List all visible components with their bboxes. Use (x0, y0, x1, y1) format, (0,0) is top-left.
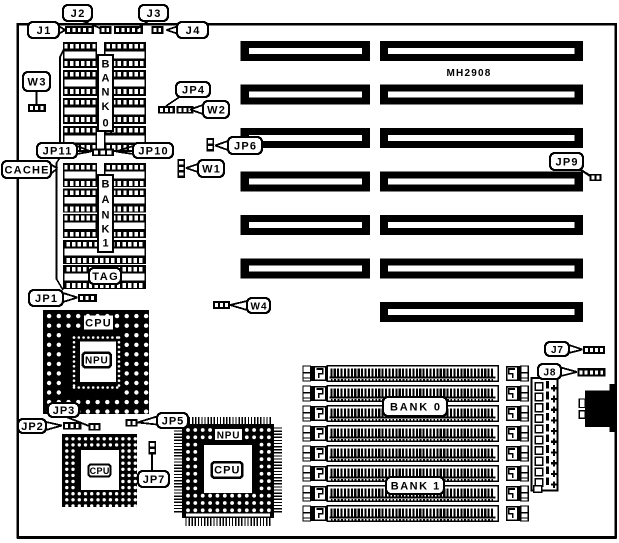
svg-text:CACHE: CACHE (5, 164, 50, 176)
svg-text:BANK 1: BANK 1 (391, 480, 441, 492)
svg-text:W3: W3 (28, 76, 48, 88)
svg-text:B: B (102, 59, 110, 71)
svg-text:N: N (102, 87, 110, 99)
svg-text:N: N (102, 209, 110, 221)
svg-text:CPU: CPU (214, 465, 240, 477)
svg-text:J2: J2 (71, 8, 86, 20)
svg-text:NPU: NPU (217, 431, 241, 442)
svg-text:JP3: JP3 (53, 405, 76, 417)
svg-text:W2: W2 (207, 104, 226, 116)
svg-text:J1: J1 (37, 25, 52, 37)
svg-text:JP5: JP5 (162, 415, 185, 427)
svg-text:MH2908: MH2908 (447, 68, 492, 79)
svg-text:JP11: JP11 (43, 145, 73, 157)
svg-text:K: K (102, 101, 110, 113)
svg-text:JP4: JP4 (182, 84, 205, 96)
svg-text:0: 0 (102, 118, 108, 130)
svg-text:J4: J4 (186, 25, 201, 37)
svg-text:TAG: TAG (92, 271, 119, 283)
svg-text:NPU: NPU (85, 356, 109, 367)
svg-text:A: A (102, 73, 110, 85)
svg-text:1: 1 (102, 238, 108, 250)
svg-text:JP1: JP1 (35, 293, 58, 305)
svg-text:JP7: JP7 (143, 474, 166, 486)
svg-text:W1: W1 (202, 163, 221, 175)
svg-text:J8: J8 (544, 367, 557, 378)
svg-text:K: K (102, 224, 110, 236)
svg-text:JP6: JP6 (234, 140, 257, 152)
svg-text:J7: J7 (551, 345, 564, 356)
svg-text:JP9: JP9 (556, 156, 579, 168)
svg-text:B: B (102, 179, 110, 191)
svg-text:JP2: JP2 (21, 421, 44, 433)
svg-text:W4: W4 (251, 301, 268, 312)
svg-text:CPU: CPU (90, 466, 110, 476)
svg-text:A: A (102, 194, 110, 206)
svg-text:JP10: JP10 (138, 145, 169, 157)
svg-text:CPU: CPU (85, 318, 112, 330)
svg-text:J3: J3 (147, 8, 162, 20)
svg-text:BANK 0: BANK 0 (390, 401, 442, 413)
